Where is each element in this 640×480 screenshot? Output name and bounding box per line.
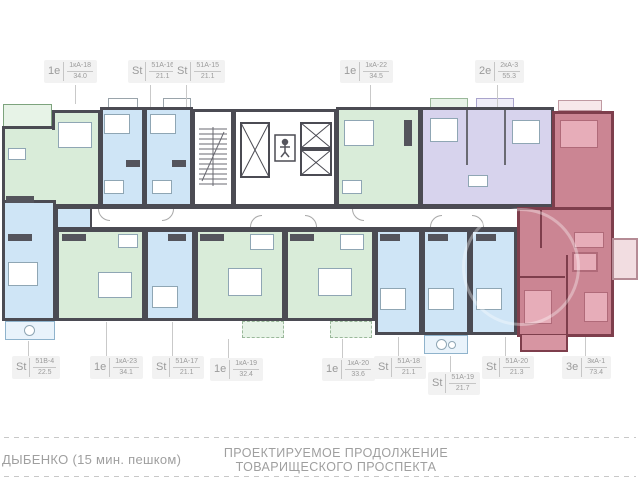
kitchen-icon bbox=[200, 234, 224, 241]
leader-line bbox=[450, 356, 451, 372]
floorplan-screenshot: { "colors": { "wall": "#4b4b53", "green"… bbox=[0, 0, 640, 480]
unit-code: 3кА-1 bbox=[585, 358, 607, 368]
unit-label-51a-15: St 51А-1521.1 bbox=[173, 60, 225, 83]
wall bbox=[504, 110, 506, 165]
unit-area: 32.4 bbox=[239, 370, 253, 379]
unit-type: 3е bbox=[566, 362, 578, 373]
balcony-red-top bbox=[558, 100, 602, 111]
leader-line bbox=[228, 339, 229, 358]
wc-person-icon bbox=[280, 140, 290, 158]
kitchen-icon bbox=[428, 234, 448, 241]
unit-type: 1е bbox=[344, 66, 356, 77]
unit-type: St bbox=[132, 66, 142, 77]
unit-type: St bbox=[378, 362, 388, 373]
watermark-circle bbox=[462, 208, 580, 326]
balcony-1ka-20 bbox=[330, 321, 372, 338]
balcony-1ka-19 bbox=[242, 321, 284, 338]
stairs-icon bbox=[192, 109, 234, 207]
unit-shape-51b-4-bath bbox=[56, 207, 92, 229]
unit-label-1ka-22: 1е 1кА-2234.5 bbox=[340, 60, 393, 83]
bath-icon bbox=[250, 234, 274, 250]
bed-icon bbox=[104, 114, 130, 134]
kitchen-icon bbox=[62, 234, 86, 241]
unit-type: 1е bbox=[48, 66, 60, 77]
unit-area: 33.6 bbox=[351, 370, 365, 379]
unit-shape-51a-19 bbox=[422, 229, 470, 335]
unit-label-51a-17: St 51А-1721.1 bbox=[152, 356, 204, 379]
unit-code: 51А-15 bbox=[194, 62, 221, 72]
unit-type: 1е bbox=[326, 364, 338, 375]
unit-area: 22.5 bbox=[38, 368, 52, 377]
kitchen-icon bbox=[126, 160, 140, 167]
leader-line bbox=[342, 339, 343, 358]
wall bbox=[466, 110, 468, 165]
table-icon bbox=[436, 339, 447, 350]
leader-line bbox=[370, 85, 371, 107]
leader-line bbox=[186, 85, 187, 107]
unit-label-2ka-3: 2е 2кА-355.3 bbox=[475, 60, 524, 83]
kitchen-icon bbox=[404, 120, 412, 146]
bed-icon bbox=[8, 262, 38, 286]
unit-code: 51А-20 bbox=[503, 358, 530, 368]
leader-line bbox=[150, 85, 151, 107]
unit-area: 34.1 bbox=[119, 368, 133, 377]
unit-label-51b-4: St 51В-422.5 bbox=[12, 356, 60, 379]
bath-icon bbox=[152, 180, 172, 194]
unit-code: 51В-4 bbox=[33, 358, 56, 368]
dashed-divider-bottom bbox=[4, 476, 636, 477]
unit-area: 21.1 bbox=[201, 72, 215, 81]
unit-shape-51a-18 bbox=[375, 229, 422, 335]
kitchen-icon bbox=[290, 234, 314, 241]
balcony-3ka-1 bbox=[520, 335, 568, 352]
unit-area: 55.3 bbox=[502, 72, 516, 81]
unit-type: 1е bbox=[94, 362, 106, 373]
bed-icon bbox=[228, 268, 262, 296]
unit-type: 1е bbox=[214, 364, 226, 375]
unit-shape-51b-4 bbox=[2, 200, 56, 321]
unit-area: 73.4 bbox=[589, 368, 603, 377]
unit-code: 1кА-18 bbox=[67, 62, 93, 72]
bed-icon bbox=[318, 268, 352, 296]
bed-icon bbox=[150, 114, 176, 134]
table-icon bbox=[468, 175, 488, 187]
balcony-3ka-1-side bbox=[612, 238, 638, 280]
unit-code: 2кА-3 bbox=[498, 62, 520, 72]
unit-area: 34.5 bbox=[369, 72, 383, 81]
unit-area: 21.1 bbox=[180, 368, 194, 377]
unit-area: 34.0 bbox=[73, 72, 87, 81]
table-icon bbox=[574, 232, 604, 248]
leader-line bbox=[106, 322, 107, 356]
bath-icon bbox=[342, 180, 362, 194]
corridor bbox=[90, 206, 517, 230]
bed-icon bbox=[560, 120, 598, 148]
chair-icon bbox=[448, 341, 456, 349]
unit-label-51a-19: St 51А-1921.7 bbox=[428, 372, 480, 395]
leader-line bbox=[75, 85, 76, 104]
kitchen-icon bbox=[380, 234, 400, 241]
unit-code: 1кА-19 bbox=[233, 360, 259, 370]
metro-label: ДЫБЕНКО (15 мин. пешком) bbox=[2, 452, 181, 467]
unit-area: 21.3 bbox=[510, 368, 524, 377]
unit-type: 2е bbox=[479, 66, 491, 77]
bed-icon bbox=[428, 288, 454, 310]
dashed-divider-top bbox=[4, 437, 636, 438]
unit-label-51a-18: St 51А-1821.1 bbox=[374, 356, 426, 379]
bath-icon bbox=[8, 148, 26, 160]
leader-line bbox=[172, 322, 173, 356]
bath-icon bbox=[340, 234, 364, 250]
table-icon bbox=[24, 325, 35, 336]
unit-code: 51А-18 bbox=[395, 358, 422, 368]
unit-area: 21.1 bbox=[156, 72, 170, 81]
leader-line bbox=[585, 337, 586, 356]
bed-icon bbox=[430, 118, 458, 142]
unit-code: 1кА-23 bbox=[113, 358, 139, 368]
unit-label-1ka-20: 1е 1кА-2033.6 bbox=[322, 358, 375, 381]
bath-icon bbox=[118, 234, 138, 248]
bed-icon bbox=[98, 272, 132, 298]
unit-code: 1кА-20 bbox=[345, 360, 371, 370]
leader-line bbox=[398, 337, 399, 356]
bed-icon bbox=[344, 120, 374, 146]
leader-line bbox=[497, 85, 498, 107]
bed-icon bbox=[152, 286, 178, 308]
unit-label-51a-20: St 51А-2021.3 bbox=[482, 356, 534, 379]
unit-code: 51А-19 bbox=[449, 374, 476, 384]
bed-icon bbox=[58, 122, 92, 148]
unit-code: 51А-16 bbox=[149, 62, 176, 72]
kitchen-icon bbox=[8, 234, 32, 241]
bath-icon bbox=[104, 180, 124, 194]
unit-type: St bbox=[486, 362, 496, 373]
bed-icon bbox=[512, 120, 540, 144]
kitchen-icon bbox=[6, 196, 34, 203]
unit-type: St bbox=[432, 378, 442, 389]
leader-line bbox=[505, 337, 506, 356]
bed-icon bbox=[380, 288, 406, 310]
unit-label-1ka-19: 1е 1кА-1932.4 bbox=[210, 358, 263, 381]
balcony-top-left bbox=[3, 104, 52, 128]
street-label: ПРОЕКТИРУЕМОЕ ПРОДОЛЖЕНИЕ ТОВАРИЩЕСКОГО … bbox=[178, 446, 494, 474]
kitchen-icon bbox=[168, 234, 186, 241]
elevator-icons bbox=[233, 109, 337, 207]
unit-code: 51А-17 bbox=[173, 358, 200, 368]
unit-area: 21.7 bbox=[456, 384, 470, 393]
kitchen-icon bbox=[172, 160, 186, 167]
leader-line bbox=[28, 341, 29, 356]
unit-type: St bbox=[156, 362, 166, 373]
unit-label-1ka-18: 1е 1кА-1834.0 bbox=[44, 60, 97, 83]
bed-icon bbox=[584, 292, 608, 322]
unit-label-1ka-23: 1е 1кА-2334.1 bbox=[90, 356, 143, 379]
unit-label-3ka-1: 3е 3кА-173.4 bbox=[562, 356, 611, 379]
unit-code: 1кА-22 bbox=[363, 62, 389, 72]
unit-type: St bbox=[177, 66, 187, 77]
unit-area: 21.1 bbox=[402, 368, 416, 377]
unit-type: St bbox=[16, 362, 26, 373]
